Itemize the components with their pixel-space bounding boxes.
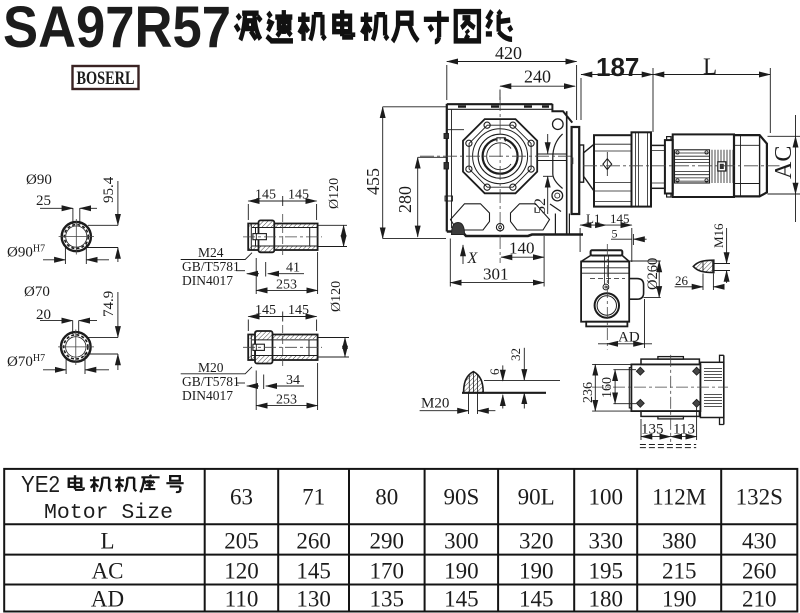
- svg-text:140: 140: [509, 239, 535, 258]
- svg-text:145: 145: [610, 211, 630, 226]
- svg-text:DIN4017: DIN4017: [182, 273, 233, 288]
- svg-text:112M: 112M: [652, 485, 706, 510]
- svg-text:Ø90: Ø90: [26, 172, 52, 188]
- svg-text:90L: 90L: [518, 485, 555, 510]
- svg-text:210: 210: [742, 587, 777, 612]
- svg-text:145: 145: [255, 188, 276, 203]
- svg-text:145: 145: [296, 559, 331, 584]
- svg-text:113: 113: [673, 422, 695, 438]
- svg-text:52: 52: [532, 198, 549, 214]
- svg-text:190: 190: [444, 559, 479, 584]
- svg-text:32: 32: [508, 348, 523, 361]
- svg-text:420: 420: [495, 43, 522, 63]
- svg-text:74.9: 74.9: [101, 291, 117, 317]
- svg-text:215: 215: [662, 559, 697, 584]
- svg-text:Ø90H7: Ø90H7: [7, 244, 45, 261]
- svg-text:145: 145: [288, 188, 309, 203]
- svg-text:Motor Size: Motor Size: [44, 501, 173, 525]
- svg-text:330: 330: [588, 529, 623, 554]
- svg-text:160: 160: [600, 377, 615, 398]
- svg-text:145: 145: [444, 587, 479, 612]
- svg-text:Ø120: Ø120: [327, 178, 342, 209]
- svg-text:90S: 90S: [444, 485, 480, 510]
- svg-text:GB/T5781: GB/T5781: [182, 374, 240, 389]
- svg-text:145: 145: [288, 303, 309, 318]
- svg-text:110: 110: [225, 587, 259, 612]
- svg-text:236: 236: [581, 382, 596, 403]
- svg-text:DIN4017: DIN4017: [182, 388, 233, 403]
- svg-text:95.4: 95.4: [101, 176, 117, 203]
- svg-text:120: 120: [224, 559, 259, 584]
- svg-text:Ø70: Ø70: [24, 284, 50, 300]
- svg-text:240: 240: [524, 67, 551, 87]
- svg-text:380: 380: [662, 529, 697, 554]
- svg-text:SA97R57: SA97R57: [3, 0, 231, 60]
- svg-text:71: 71: [302, 485, 325, 510]
- svg-text:145: 145: [519, 587, 554, 612]
- svg-text:M20: M20: [198, 360, 224, 375]
- svg-text:430: 430: [742, 529, 777, 554]
- svg-text:63: 63: [230, 485, 253, 510]
- svg-text:205: 205: [224, 529, 259, 554]
- svg-text:5: 5: [612, 227, 618, 241]
- svg-text:Ø260: Ø260: [645, 258, 661, 290]
- svg-text:Ø70H7: Ø70H7: [7, 353, 45, 370]
- svg-text:180: 180: [588, 587, 623, 612]
- svg-text:290: 290: [370, 529, 405, 554]
- svg-text:AC: AC: [771, 146, 797, 179]
- svg-text:26: 26: [675, 273, 689, 288]
- svg-text:170: 170: [370, 559, 405, 584]
- svg-text:6: 6: [487, 368, 502, 375]
- svg-text:132S: 132S: [736, 485, 783, 510]
- svg-text:100: 100: [588, 485, 623, 510]
- svg-text:280: 280: [395, 186, 415, 213]
- svg-text:130: 130: [296, 587, 331, 612]
- svg-text:Ø120: Ø120: [329, 281, 344, 312]
- svg-text:187: 187: [596, 52, 639, 82]
- svg-text:L1: L1: [586, 211, 600, 226]
- svg-text:455: 455: [363, 168, 383, 195]
- svg-text:135: 135: [641, 422, 664, 438]
- svg-text:260: 260: [742, 559, 777, 584]
- svg-text:AD: AD: [618, 330, 640, 346]
- svg-text:YE2: YE2: [21, 471, 60, 497]
- svg-text:X: X: [467, 250, 479, 267]
- svg-text:300: 300: [444, 529, 479, 554]
- svg-text:M16: M16: [711, 223, 726, 248]
- svg-text:320: 320: [519, 529, 554, 554]
- svg-text:135: 135: [370, 587, 405, 612]
- svg-text:260: 260: [296, 529, 331, 554]
- svg-text:80: 80: [375, 485, 398, 510]
- svg-text:BOSERL: BOSERL: [77, 68, 135, 89]
- svg-text:195: 195: [588, 559, 623, 584]
- svg-text:25: 25: [36, 193, 51, 209]
- svg-text:190: 190: [519, 559, 554, 584]
- svg-text:M20: M20: [421, 396, 449, 412]
- svg-text:GB/T5781: GB/T5781: [182, 259, 240, 274]
- svg-text:190: 190: [662, 587, 697, 612]
- svg-text:AC: AC: [92, 559, 124, 584]
- svg-text:145: 145: [255, 303, 276, 318]
- svg-text:301: 301: [483, 265, 509, 284]
- svg-text:L: L: [100, 529, 114, 554]
- svg-text:AD: AD: [91, 587, 124, 612]
- svg-text:L: L: [703, 54, 717, 79]
